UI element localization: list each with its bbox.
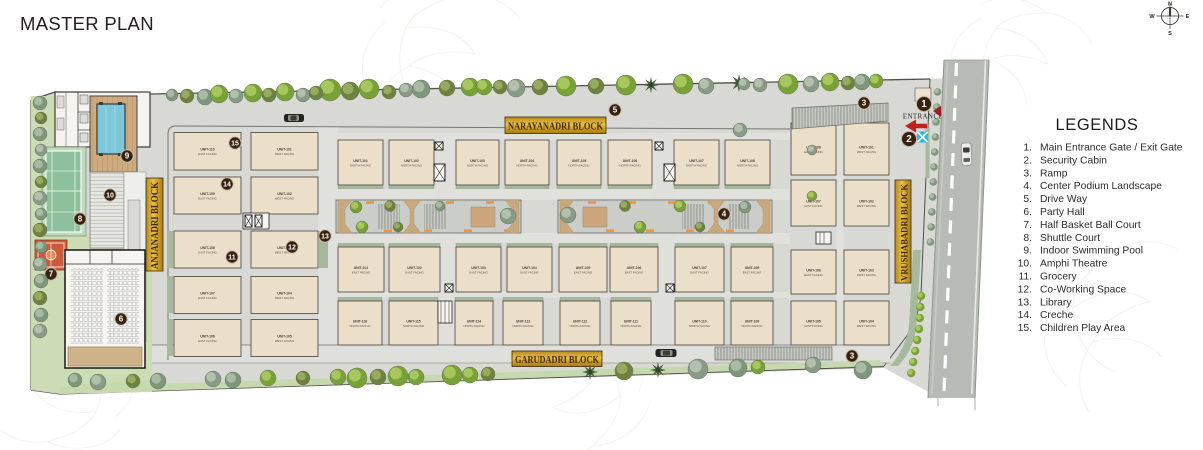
svg-text:14.: 14. [1018,310,1032,321]
svg-text:Party Hall: Party Hall [1040,207,1085,218]
svg-text:1: 1 [921,99,927,110]
svg-text:GARUDADRI BLOCK: GARUDADRI BLOCK [515,355,600,366]
svg-text:5: 5 [613,106,618,115]
svg-text:EAST FACING: EAST FACING [198,152,216,156]
svg-text:8.: 8. [1023,233,1032,244]
svg-text:EAST FACING: EAST FACING [743,270,761,274]
svg-text:12: 12 [288,244,296,251]
svg-text:EAST FACING: EAST FACING [198,339,216,343]
svg-text:EAST FACING: EAST FACING [520,270,538,274]
svg-text:W: W [1149,14,1155,20]
svg-text:EAST FACING: EAST FACING [405,270,423,274]
svg-text:UNIT-103: UNIT-103 [859,268,874,272]
svg-text:UNIT-102: UNIT-102 [859,199,874,203]
svg-text:NORTH FACING: NORTH FACING [686,163,707,167]
svg-text:UNIT-101: UNIT-101 [354,266,369,270]
svg-text:UNIT-108: UNIT-108 [200,246,215,250]
svg-text:2.: 2. [1023,155,1032,166]
svg-text:LEGENDS: LEGENDS [1055,116,1138,134]
svg-text:Amphi Theatre: Amphi Theatre [1040,259,1108,270]
svg-text:WEST FACING: WEST FACING [857,324,876,328]
svg-text:9.: 9. [1023,246,1032,257]
svg-text:3: 3 [850,352,855,361]
svg-text:10.: 10. [1018,259,1032,270]
svg-text:UNIT-105: UNIT-105 [806,319,821,323]
svg-text:UNIT-101: UNIT-101 [353,159,368,163]
svg-text:NORTH FACING: NORTH FACING [569,324,590,328]
svg-text:10: 10 [106,192,114,199]
svg-text:EAST FACING: EAST FACING [469,270,487,274]
svg-text:3: 3 [862,99,867,108]
svg-text:4: 4 [722,210,727,219]
svg-text:WEST FACING: WEST FACING [275,296,294,300]
svg-text:UNIT-107: UNIT-107 [689,159,704,163]
svg-text:E: E [1186,14,1190,20]
svg-text:UNIT-108: UNIT-108 [740,159,755,163]
svg-text:15: 15 [231,140,239,147]
svg-text:NORTH FACING: NORTH FACING [516,163,537,167]
svg-text:UNIT-115: UNIT-115 [406,319,420,323]
svg-text:WEST FACING: WEST FACING [275,152,294,156]
svg-text:UNIT-106: UNIT-106 [627,266,642,270]
svg-text:EAST FACING: EAST FACING [198,250,216,254]
svg-text:UNIT-108: UNIT-108 [745,266,760,270]
svg-text:NORTH FACING: NORTH FACING [403,324,424,328]
svg-text:UNIT-101: UNIT-101 [277,148,292,152]
svg-text:7: 7 [49,270,54,279]
svg-text:UNIT-110: UNIT-110 [200,148,214,152]
svg-text:8: 8 [78,215,83,224]
svg-text:15.: 15. [1018,323,1032,334]
svg-text:ENTRANCE: ENTRANCE [903,114,943,121]
svg-text:NORTH FACING: NORTH FACING [689,324,710,328]
svg-text:UNIT-106: UNIT-106 [806,268,821,272]
svg-text:UNIT-104: UNIT-104 [277,291,292,295]
svg-text:UNIT-104: UNIT-104 [859,319,874,323]
svg-text:Library: Library [1040,297,1072,308]
svg-text:UNIT-113: UNIT-113 [516,319,530,323]
svg-text:UNIT-109: UNIT-109 [200,192,215,196]
svg-text:NORTH FACING: NORTH FACING [620,324,641,328]
svg-text:EAST FACING: EAST FACING [804,324,822,328]
svg-text:EAST FACING: EAST FACING [198,296,216,300]
svg-text:13.: 13. [1018,297,1032,308]
svg-text:Center Podium Landscape: Center Podium Landscape [1040,181,1162,192]
svg-text:UNIT-103: UNIT-103 [471,266,486,270]
svg-text:UNIT-112: UNIT-112 [573,319,587,323]
svg-text:3.: 3. [1023,168,1032,179]
svg-text:UNIT-102: UNIT-102 [404,159,419,163]
svg-text:Grocery: Grocery [1040,272,1077,283]
svg-text:UNIT-105: UNIT-105 [576,266,591,270]
svg-text:Co-Working Space: Co-Working Space [1040,284,1126,295]
svg-text:7.: 7. [1023,220,1032,231]
svg-text:Indoor Swimming Pool: Indoor Swimming Pool [1040,246,1143,257]
svg-text:WEST FACING: WEST FACING [275,339,294,343]
svg-text:UNIT-101: UNIT-101 [859,145,874,149]
svg-text:S: S [1168,31,1172,37]
svg-text:MASTER PLAN: MASTER PLAN [20,13,154,34]
svg-text:2: 2 [906,134,912,145]
svg-text:NORTH FACING: NORTH FACING [401,163,422,167]
svg-text:UNIT-114: UNIT-114 [467,319,481,323]
svg-text:UNIT-107: UNIT-107 [200,291,215,295]
svg-text:NORTH FACING: NORTH FACING [737,163,758,167]
svg-text:N: N [1168,2,1172,8]
svg-text:UNIT-109: UNIT-109 [745,319,760,323]
svg-text:NORTH FACING: NORTH FACING [619,163,640,167]
svg-text:UNIT-106: UNIT-106 [623,159,638,163]
svg-text:UNIT-110: UNIT-110 [692,319,706,323]
svg-text:UNIT-104: UNIT-104 [520,159,535,163]
svg-text:NORTH FACING: NORTH FACING [349,324,370,328]
svg-text:EAST FACING: EAST FACING [198,196,216,200]
svg-text:Ramp: Ramp [1040,168,1068,179]
svg-text:Shuttle Court: Shuttle Court [1040,233,1100,244]
svg-text:13: 13 [321,233,329,240]
svg-text:WEST FACING: WEST FACING [857,204,876,208]
svg-text:ANJANADRI BLOCK: ANJANADRI BLOCK [150,182,161,269]
svg-text:EAST FACING: EAST FACING [690,270,708,274]
svg-text:UNIT-103: UNIT-103 [470,159,485,163]
svg-text:11.: 11. [1018,272,1032,283]
svg-text:12.: 12. [1018,284,1032,295]
svg-text:NORTH FACING: NORTH FACING [512,324,533,328]
svg-text:5.: 5. [1023,194,1032,205]
svg-text:WEST FACING: WEST FACING [857,273,876,277]
svg-text:UNIT-102: UNIT-102 [277,192,292,196]
svg-text:NORTH FACING: NORTH FACING [350,163,371,167]
svg-text:EAST FACING: EAST FACING [625,270,643,274]
svg-text:UNIT-105: UNIT-105 [277,334,292,338]
svg-text:9: 9 [125,152,130,161]
svg-text:6.: 6. [1023,207,1032,218]
svg-text:UNIT-111: UNIT-111 [624,319,638,323]
svg-text:11: 11 [228,254,236,261]
svg-text:VRUSHABADRI BLOCK: VRUSHABADRI BLOCK [901,183,911,281]
svg-text:WEST FACING: WEST FACING [275,196,294,200]
svg-text:EAST FACING: EAST FACING [574,270,592,274]
svg-text:UNIT-102: UNIT-102 [407,266,422,270]
svg-text:Main Entrance Gate / Exit Gate: Main Entrance Gate / Exit Gate [1040,143,1183,154]
svg-text:Children Play Area: Children Play Area [1040,323,1126,334]
svg-text:NARAYANADRI BLOCK: NARAYANADRI BLOCK [508,121,603,133]
svg-text:UNIT-106: UNIT-106 [200,334,215,338]
svg-text:UNIT-107: UNIT-107 [692,266,707,270]
svg-text:NORTH FACING: NORTH FACING [741,324,762,328]
svg-text:4.: 4. [1023,181,1032,192]
svg-text:EAST FACING: EAST FACING [352,270,370,274]
svg-text:Drive Way: Drive Way [1040,194,1088,205]
svg-text:UNIT-104: UNIT-104 [522,266,537,270]
svg-text:NORTH FACING: NORTH FACING [467,163,488,167]
svg-text:NORTH FACING: NORTH FACING [463,324,484,328]
svg-text:EAST FACING: EAST FACING [804,273,822,277]
svg-text:NORTH FACING: NORTH FACING [568,163,589,167]
svg-text:WEST FACING: WEST FACING [857,150,876,154]
svg-text:1.: 1. [1023,143,1032,154]
svg-text:Security Cabin: Security Cabin [1040,155,1107,166]
svg-text:UNIT-116: UNIT-116 [353,319,367,323]
svg-text:14: 14 [223,181,231,188]
svg-text:UNIT-105: UNIT-105 [572,159,587,163]
svg-text:EAST FACING: EAST FACING [804,204,822,208]
svg-text:Half Basket Ball Court: Half Basket Ball Court [1040,220,1141,231]
svg-text:Creche: Creche [1040,310,1073,321]
svg-text:6: 6 [119,315,124,324]
